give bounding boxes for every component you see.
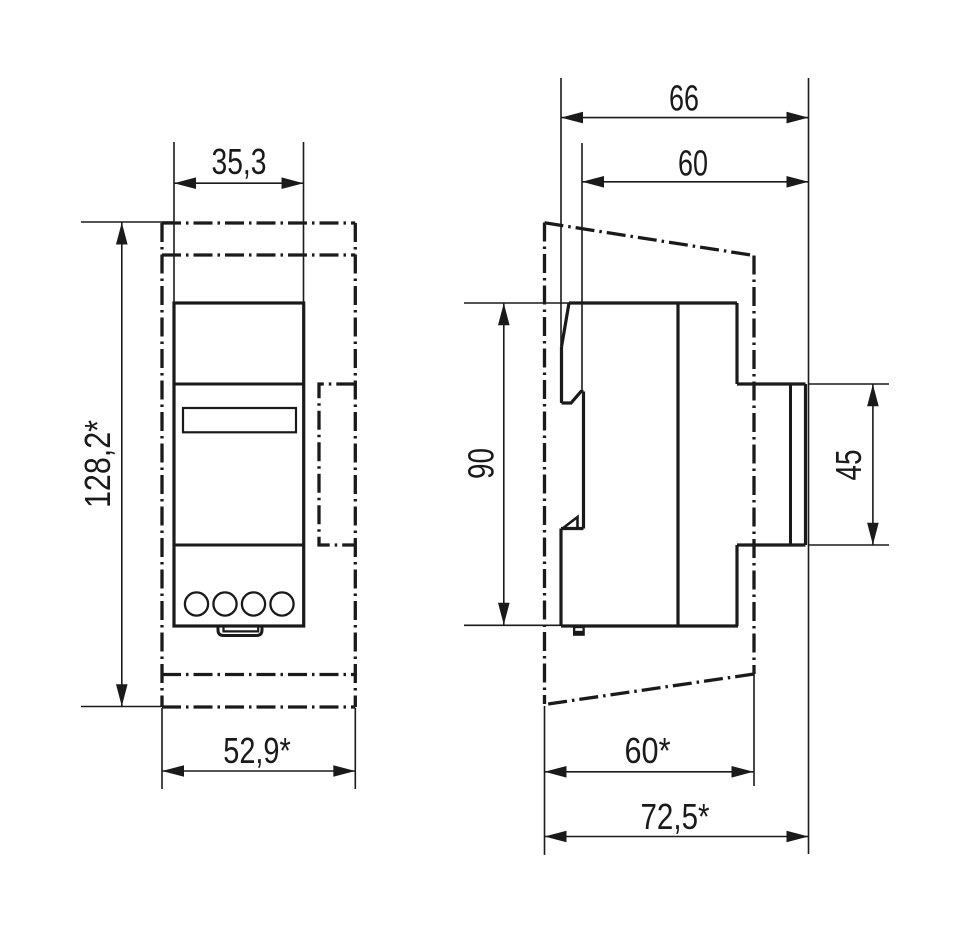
svg-text:128,2*: 128,2* xyxy=(77,420,118,508)
svg-text:66: 66 xyxy=(669,78,699,119)
svg-text:35,3: 35,3 xyxy=(212,141,267,182)
svg-text:90: 90 xyxy=(461,448,502,479)
svg-text:60*: 60* xyxy=(625,730,671,771)
svg-text:72,5*: 72,5* xyxy=(641,796,710,837)
svg-text:52,9*: 52,9* xyxy=(223,730,291,771)
svg-text:60: 60 xyxy=(678,143,708,184)
svg-text:45: 45 xyxy=(828,450,869,481)
